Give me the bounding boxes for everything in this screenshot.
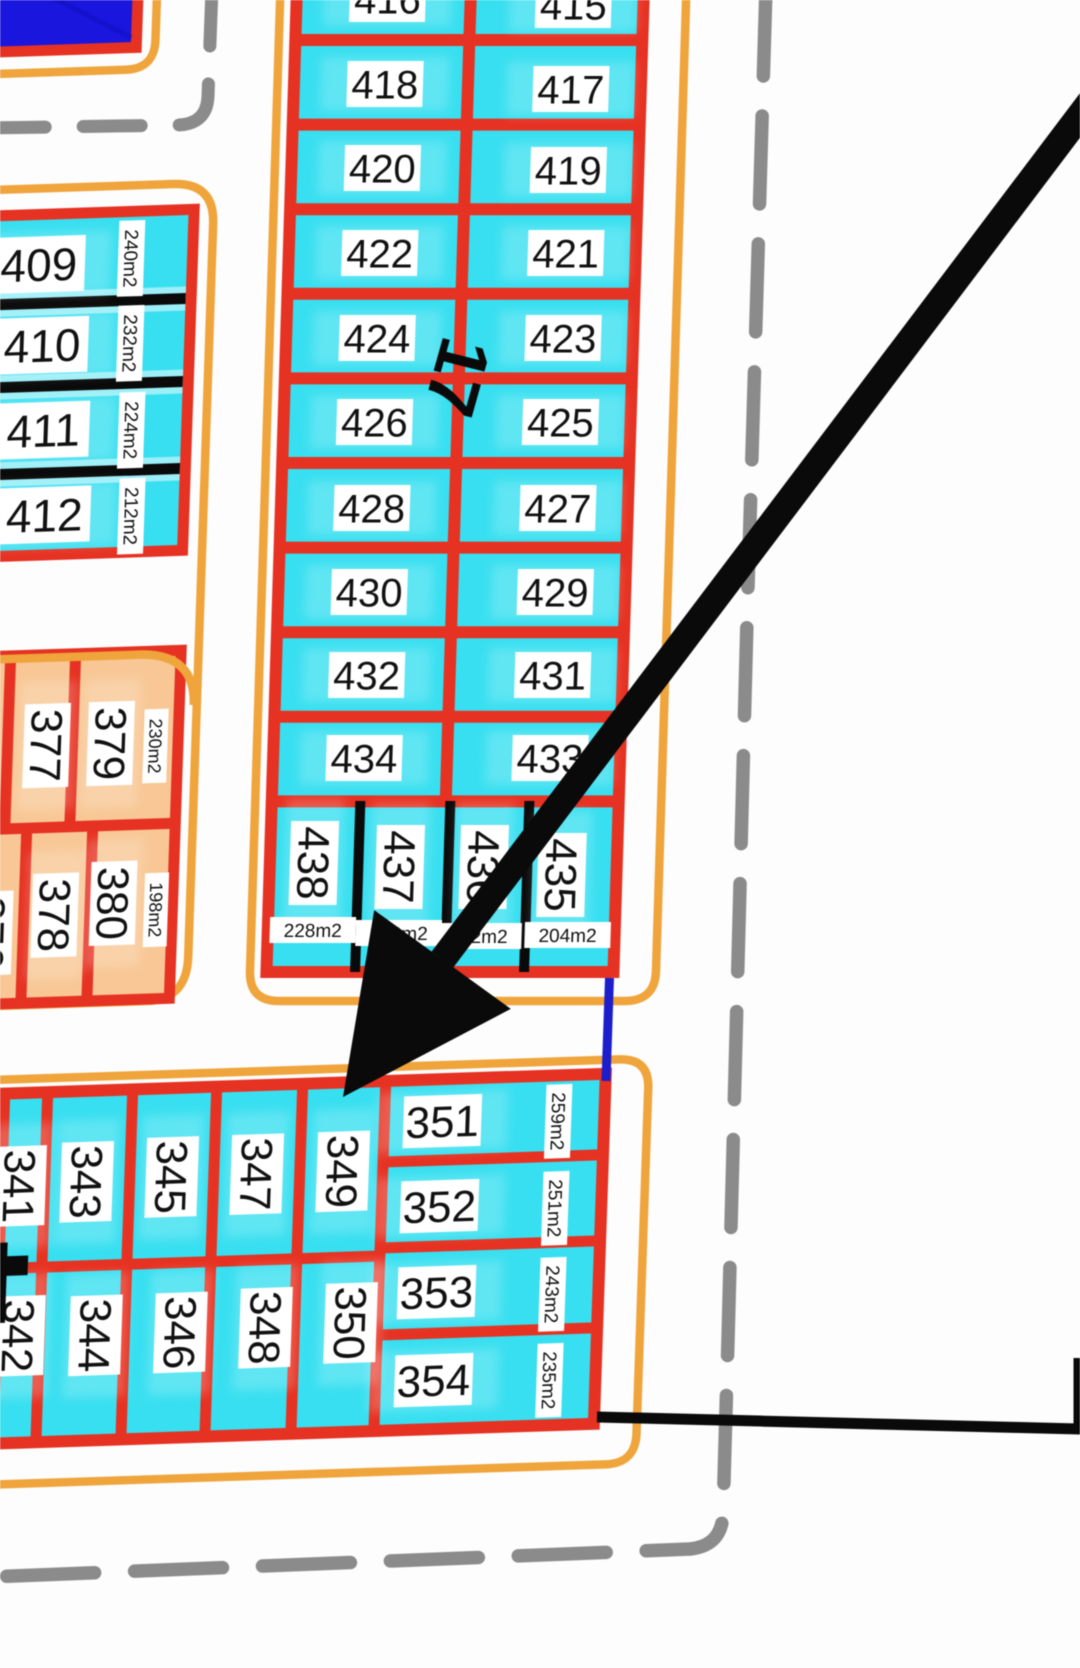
svg-text:228m2: 228m2 bbox=[283, 921, 342, 942]
svg-text:423: 423 bbox=[529, 317, 597, 361]
svg-text:212m2: 212m2 bbox=[118, 487, 141, 546]
svg-text:410: 410 bbox=[3, 319, 82, 374]
svg-text:343: 343 bbox=[60, 1144, 111, 1219]
svg-text:417: 417 bbox=[537, 68, 605, 112]
svg-text:376: 376 bbox=[0, 896, 14, 971]
svg-text:341: 341 bbox=[0, 1149, 44, 1224]
svg-text:224m2: 224m2 bbox=[118, 401, 141, 460]
svg-text:438: 438 bbox=[287, 826, 338, 899]
svg-text:419: 419 bbox=[534, 149, 602, 193]
svg-text:380: 380 bbox=[86, 866, 137, 941]
svg-text:377: 377 bbox=[19, 708, 70, 783]
svg-text:434: 434 bbox=[330, 737, 398, 781]
svg-text:421: 421 bbox=[532, 232, 600, 276]
svg-text:429: 429 bbox=[521, 571, 589, 615]
svg-text:379: 379 bbox=[83, 706, 134, 781]
svg-text:354: 354 bbox=[396, 1356, 471, 1407]
svg-text:425: 425 bbox=[526, 401, 594, 445]
svg-text:350: 350 bbox=[323, 1285, 374, 1360]
svg-text:432: 432 bbox=[333, 654, 401, 698]
svg-text:409: 409 bbox=[0, 238, 78, 293]
svg-text:412: 412 bbox=[5, 488, 84, 543]
svg-text:243m2: 243m2 bbox=[539, 1265, 562, 1324]
svg-text:411: 411 bbox=[6, 403, 81, 457]
svg-text:344: 344 bbox=[68, 1298, 119, 1373]
svg-text:251m2: 251m2 bbox=[542, 1179, 565, 1238]
svg-text:351: 351 bbox=[405, 1097, 480, 1148]
svg-text:348: 348 bbox=[238, 1290, 289, 1365]
svg-text:420: 420 bbox=[348, 147, 416, 191]
svg-text:428: 428 bbox=[338, 487, 406, 531]
svg-text:415: 415 bbox=[539, 0, 607, 28]
svg-text:424: 424 bbox=[343, 317, 411, 361]
svg-text:346: 346 bbox=[153, 1295, 204, 1370]
svg-text:378: 378 bbox=[28, 878, 79, 953]
svg-text:352: 352 bbox=[402, 1182, 477, 1233]
svg-text:430: 430 bbox=[335, 571, 403, 615]
svg-text:418: 418 bbox=[351, 63, 419, 107]
svg-text:230m2: 230m2 bbox=[144, 718, 166, 774]
svg-text:4: 4 bbox=[0, 1240, 61, 1329]
svg-text:422: 422 bbox=[346, 232, 414, 276]
svg-text:349: 349 bbox=[316, 1134, 367, 1209]
svg-text:437: 437 bbox=[373, 830, 424, 903]
svg-text:431: 431 bbox=[519, 654, 587, 698]
svg-text:198m2: 198m2 bbox=[144, 882, 166, 938]
svg-text:427: 427 bbox=[524, 487, 592, 531]
svg-text:259m2: 259m2 bbox=[545, 1092, 568, 1151]
svg-text:416: 416 bbox=[354, 0, 422, 22]
svg-text:353: 353 bbox=[399, 1268, 474, 1319]
svg-text:347: 347 bbox=[230, 1137, 281, 1212]
svg-text:232m2: 232m2 bbox=[117, 314, 140, 373]
svg-text:204m2: 204m2 bbox=[538, 926, 597, 947]
svg-text:345: 345 bbox=[145, 1140, 196, 1215]
svg-text:426: 426 bbox=[340, 401, 408, 445]
svg-text:240m2: 240m2 bbox=[118, 229, 141, 288]
svg-text:235m2: 235m2 bbox=[537, 1351, 560, 1410]
